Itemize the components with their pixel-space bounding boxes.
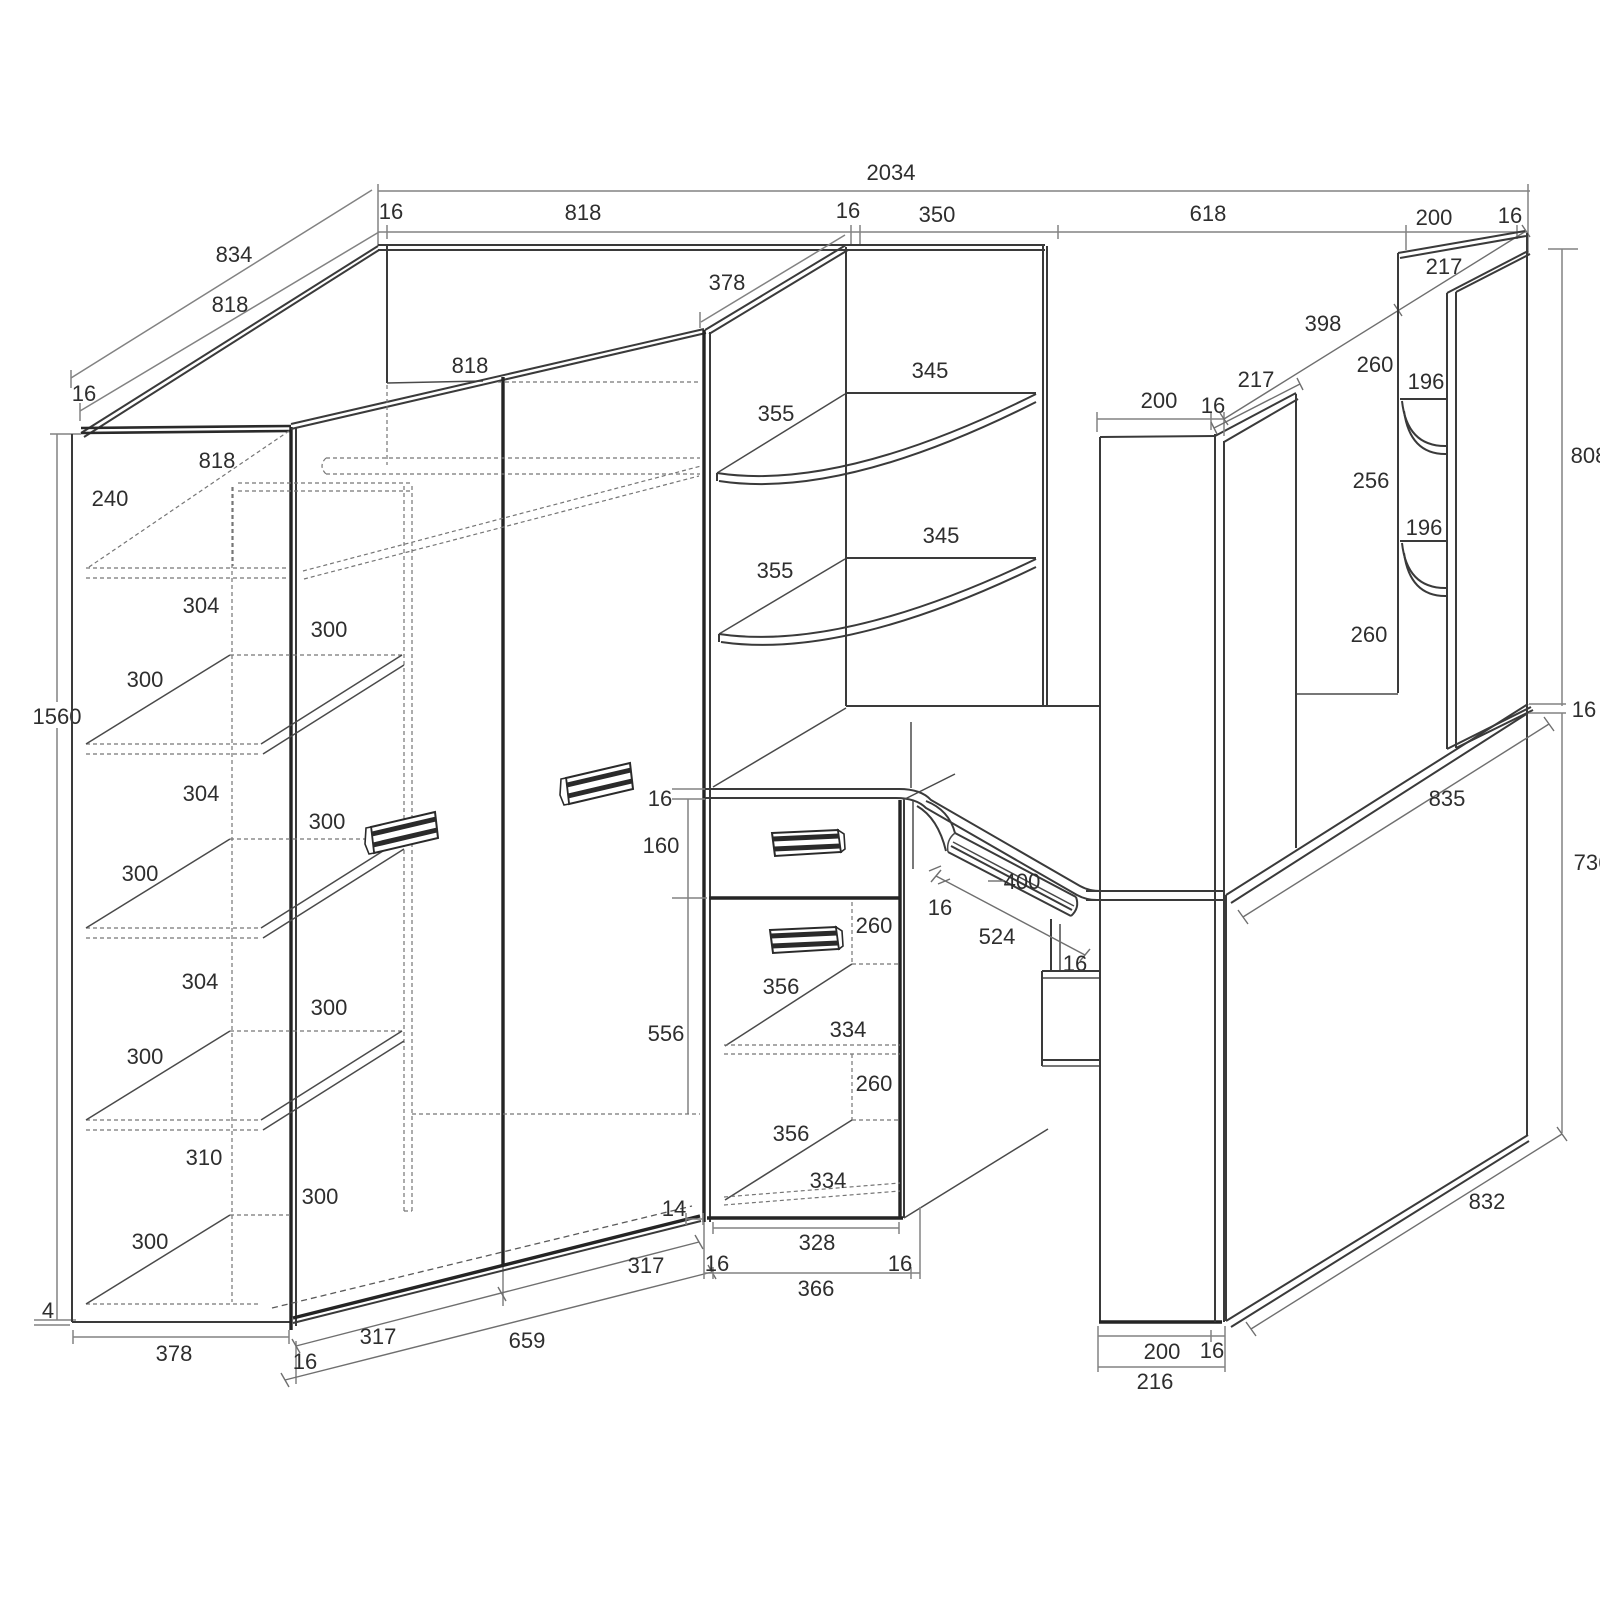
svg-text:1560: 1560 bbox=[33, 704, 82, 729]
svg-text:16: 16 bbox=[1498, 203, 1522, 228]
svg-text:300: 300 bbox=[309, 809, 346, 834]
svg-text:618: 618 bbox=[1190, 201, 1227, 226]
svg-text:355: 355 bbox=[757, 558, 794, 583]
svg-text:16: 16 bbox=[648, 786, 672, 811]
svg-text:300: 300 bbox=[127, 1044, 164, 1069]
svg-text:200: 200 bbox=[1141, 388, 1178, 413]
svg-text:196: 196 bbox=[1406, 515, 1443, 540]
svg-text:260: 260 bbox=[1357, 352, 1394, 377]
svg-text:300: 300 bbox=[311, 617, 348, 642]
svg-text:300: 300 bbox=[311, 995, 348, 1020]
svg-text:345: 345 bbox=[923, 523, 960, 548]
svg-text:16: 16 bbox=[1063, 951, 1087, 976]
svg-text:818: 818 bbox=[452, 353, 489, 378]
svg-text:350: 350 bbox=[919, 202, 956, 227]
svg-text:304: 304 bbox=[183, 781, 220, 806]
svg-text:366: 366 bbox=[798, 1276, 835, 1301]
svg-text:818: 818 bbox=[199, 448, 236, 473]
svg-text:16: 16 bbox=[836, 198, 860, 223]
svg-text:217: 217 bbox=[1426, 254, 1463, 279]
svg-text:398: 398 bbox=[1305, 311, 1342, 336]
svg-text:16: 16 bbox=[293, 1349, 317, 1374]
svg-text:832: 832 bbox=[1469, 1189, 1506, 1214]
svg-text:300: 300 bbox=[302, 1184, 339, 1209]
svg-text:300: 300 bbox=[127, 667, 164, 692]
svg-text:16: 16 bbox=[928, 895, 952, 920]
svg-text:818: 818 bbox=[212, 292, 249, 317]
svg-text:200: 200 bbox=[1144, 1339, 1181, 1364]
svg-text:356: 356 bbox=[763, 974, 800, 999]
svg-text:378: 378 bbox=[156, 1341, 193, 1366]
svg-text:356: 356 bbox=[773, 1121, 810, 1146]
svg-text:524: 524 bbox=[979, 924, 1016, 949]
svg-text:16: 16 bbox=[705, 1251, 729, 1276]
svg-text:300: 300 bbox=[122, 861, 159, 886]
svg-text:304: 304 bbox=[182, 969, 219, 994]
svg-text:310: 310 bbox=[186, 1145, 223, 1170]
svg-text:260: 260 bbox=[856, 913, 893, 938]
svg-text:16: 16 bbox=[379, 199, 403, 224]
svg-text:200: 200 bbox=[1416, 205, 1453, 230]
svg-text:355: 355 bbox=[758, 401, 795, 426]
svg-text:328: 328 bbox=[799, 1230, 836, 1255]
svg-text:260: 260 bbox=[856, 1071, 893, 1096]
svg-text:378: 378 bbox=[709, 270, 746, 295]
svg-text:317: 317 bbox=[360, 1324, 397, 1349]
svg-text:216: 216 bbox=[1137, 1369, 1174, 1394]
svg-text:217: 217 bbox=[1238, 367, 1275, 392]
svg-text:835: 835 bbox=[1429, 786, 1466, 811]
svg-text:14: 14 bbox=[662, 1196, 686, 1221]
svg-text:16: 16 bbox=[1200, 1338, 1224, 1363]
svg-text:240: 240 bbox=[92, 486, 129, 511]
svg-text:300: 300 bbox=[132, 1229, 169, 1254]
svg-text:317: 317 bbox=[628, 1253, 665, 1278]
svg-text:196: 196 bbox=[1408, 369, 1445, 394]
svg-text:16: 16 bbox=[888, 1251, 912, 1276]
svg-text:4: 4 bbox=[42, 1298, 54, 1323]
svg-text:400: 400 bbox=[1004, 869, 1041, 894]
svg-text:256: 256 bbox=[1353, 468, 1390, 493]
svg-text:659: 659 bbox=[509, 1328, 546, 1353]
svg-text:334: 334 bbox=[830, 1017, 867, 1042]
svg-text:304: 304 bbox=[183, 593, 220, 618]
svg-text:345: 345 bbox=[912, 358, 949, 383]
svg-text:260: 260 bbox=[1351, 622, 1388, 647]
svg-text:160: 160 bbox=[643, 833, 680, 858]
svg-text:834: 834 bbox=[216, 242, 253, 267]
svg-text:808: 808 bbox=[1571, 443, 1600, 468]
svg-text:16: 16 bbox=[72, 381, 96, 406]
svg-text:334: 334 bbox=[810, 1168, 847, 1193]
svg-text:736: 736 bbox=[1574, 850, 1600, 875]
svg-text:556: 556 bbox=[648, 1021, 685, 1046]
svg-text:16: 16 bbox=[1572, 697, 1596, 722]
svg-text:818: 818 bbox=[565, 200, 602, 225]
svg-text:2034: 2034 bbox=[867, 160, 916, 185]
